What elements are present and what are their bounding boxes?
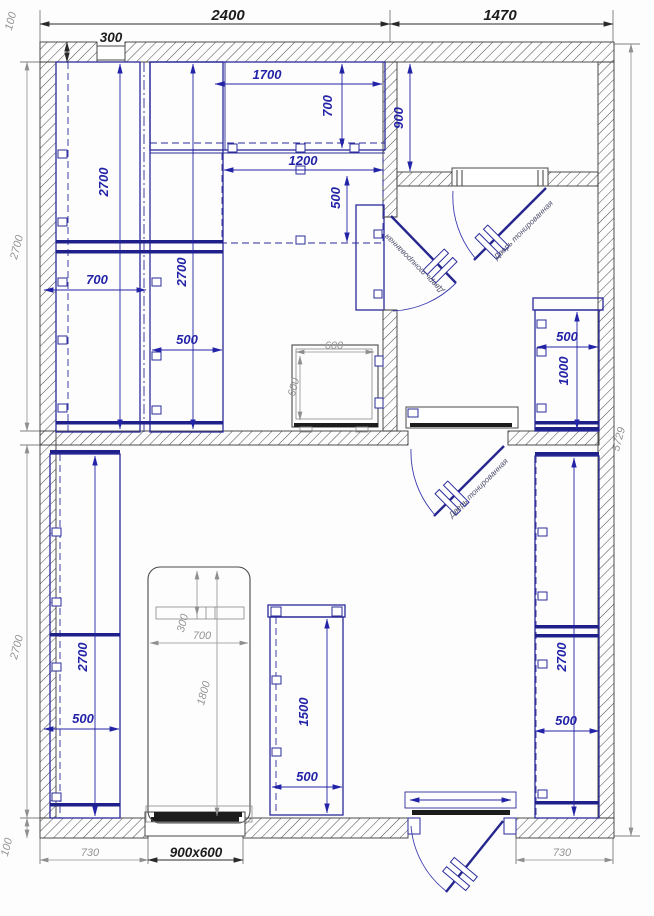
dim-br-cab-2700: 2700	[554, 642, 569, 673]
stove-600	[292, 345, 378, 427]
entrance-jamb-left	[408, 818, 420, 834]
wardrobe-base	[56, 421, 223, 425]
cabinet-handle	[538, 790, 547, 798]
tr-cabinet-cap	[533, 298, 603, 310]
bl-cabinet-base	[50, 803, 120, 807]
door-3-label: Дверь тонированная	[446, 456, 510, 520]
cabinet-handle	[152, 278, 161, 286]
cabinet-handle	[537, 348, 546, 356]
door-2-swing-arc	[393, 283, 456, 311]
entrance-sill	[412, 810, 510, 815]
outer-wall-top-right-seg	[125, 42, 614, 62]
door-3-swing-arc	[411, 449, 435, 515]
dim-wall-100-top: 100	[3, 10, 20, 32]
cabinet-corner	[332, 607, 342, 616]
cabinet-handle	[296, 236, 305, 244]
cabinet-handle	[538, 592, 547, 600]
room-bottom-furniture	[50, 450, 599, 823]
cabinet-handle	[58, 336, 67, 344]
door-1: Дверь тонированная	[452, 168, 555, 262]
door-3: Дверь тонированная	[411, 446, 510, 520]
dim-run-1700: 1700	[253, 67, 283, 82]
wall-tie	[375, 398, 383, 408]
cabinet-handle	[152, 352, 161, 360]
dim-bl-cab-2700: 2700	[75, 642, 90, 673]
br-cabinet-shelf	[535, 625, 599, 629]
door-1-frame	[452, 168, 548, 186]
middle-wall-left-seg	[40, 431, 408, 445]
wardrobe-shelf	[56, 250, 223, 254]
partition-left-seg	[397, 172, 452, 186]
dimensions-objects: 600 600 300 700 1800	[150, 340, 374, 816]
dim-bed-1800: 1800	[195, 679, 213, 707]
wardrobe-a	[56, 62, 140, 432]
cabinet-handle	[374, 290, 382, 298]
cabinet-corner	[271, 607, 281, 616]
dim-ext-left-upper: 2700	[8, 233, 26, 262]
dim-tr-900: 900	[391, 106, 406, 128]
door-2: Дверь тонированная	[382, 216, 457, 311]
cabinet-handle	[52, 663, 61, 671]
cabinet-handle	[537, 320, 546, 328]
dim-ext-top-left: 2400	[210, 7, 245, 24]
door-shelf-edge	[410, 423, 512, 427]
dim-row2-1200: 1200	[289, 153, 319, 168]
dim-bottom-window: 900x600	[170, 845, 223, 860]
central-wall-lower-seg	[383, 310, 397, 431]
bed-foot-bench	[154, 812, 242, 817]
dim-center-cab-500: 500	[296, 769, 318, 784]
tr-cabinet-base	[535, 421, 599, 425]
cabinet-handle	[52, 793, 61, 801]
dim-row2-500: 500	[328, 186, 343, 208]
dim-bottom-right-730: 730	[553, 847, 572, 859]
dim-wardrobe-b-500: 500	[176, 332, 198, 347]
cabinet-handle	[538, 528, 547, 536]
floor-plan-page: Дверь тонированная Дверь тонированная Дв…	[0, 0, 654, 916]
dim-ext-top-right: 1470	[483, 7, 517, 24]
stove-inner	[296, 349, 372, 419]
outer-wall-bottom-seg1	[40, 818, 148, 838]
dim-wardrobe-a-700: 700	[86, 272, 108, 287]
dim-run-700: 700	[320, 94, 335, 116]
bed-headboard	[156, 607, 244, 619]
cabinet-handle	[52, 528, 61, 536]
middle-wall-right-seg	[508, 431, 599, 445]
cabinet-handle	[228, 144, 237, 152]
cabinet-handle	[272, 676, 281, 684]
cabinet-handle	[58, 150, 67, 158]
dim-wardrobe-b-2700: 2700	[174, 257, 189, 288]
outer-wall-top-left-seg	[40, 42, 97, 62]
door-1-swing-arc	[453, 191, 476, 259]
cabinet-handle	[58, 278, 67, 286]
cabinet-handle	[52, 598, 61, 606]
vestibule-furniture	[406, 298, 603, 431]
entrance-jamb-right	[504, 818, 516, 834]
floor-plan-canvas: Дверь тонированная Дверь тонированная Дв…	[0, 0, 654, 916]
door-entrance	[411, 821, 503, 892]
cabinet-handle	[272, 748, 281, 756]
outer-wall-bottom-seg3	[516, 818, 614, 838]
dim-ext-left-lower: 2700	[8, 633, 26, 662]
tr-cabinet-base	[535, 427, 599, 431]
cabinet-handle	[350, 144, 359, 152]
room-top-left-furniture	[56, 62, 385, 432]
stove-front	[294, 423, 378, 427]
br-cabinet-shelf	[535, 634, 599, 638]
dim-stove-600w: 600	[325, 340, 344, 352]
dim-bed-300: 300	[175, 612, 192, 634]
top-vent-window	[97, 46, 125, 60]
dim-bottom-left-730: 730	[81, 847, 100, 859]
dim-top-window: 300	[100, 30, 123, 45]
cabinet-handle	[296, 144, 305, 152]
dim-center-cab-1500: 1500	[296, 697, 311, 727]
dim-tr-cab-500: 500	[556, 329, 578, 344]
door-shelf-tick	[408, 409, 418, 417]
cabinet-handle	[538, 660, 547, 668]
br-cabinet-base	[535, 801, 599, 805]
dim-wardrobe-a-2700: 2700	[96, 167, 111, 198]
door-3-leaf	[434, 446, 504, 516]
cabinet-handle	[58, 404, 67, 412]
door-1-label: Дверь тонированная	[491, 198, 555, 262]
cabinet-handle	[152, 406, 161, 414]
dim-bl-cab-500: 500	[72, 711, 94, 726]
cabinet-handle	[58, 218, 67, 226]
partition-right-seg	[548, 172, 598, 186]
wardrobe-shelf	[56, 240, 223, 244]
dim-br-cab-500: 500	[555, 713, 577, 728]
dim-bed-700: 700	[193, 630, 212, 642]
wall-tie	[375, 356, 383, 366]
outer-wall-right	[598, 62, 614, 818]
dim-tr-cab-1000: 1000	[556, 356, 571, 386]
bottom-window-sash	[151, 817, 239, 822]
wardrobe-b	[150, 62, 223, 432]
bl-cabinet-shelf	[50, 633, 120, 637]
cabinet-handle	[537, 404, 546, 412]
dim-wall-100-bottom: 100	[0, 836, 16, 858]
outer-wall-bottom-seg2	[243, 818, 408, 838]
entrance-door-swing-arc	[411, 826, 446, 891]
cabinet-handle	[374, 230, 382, 238]
